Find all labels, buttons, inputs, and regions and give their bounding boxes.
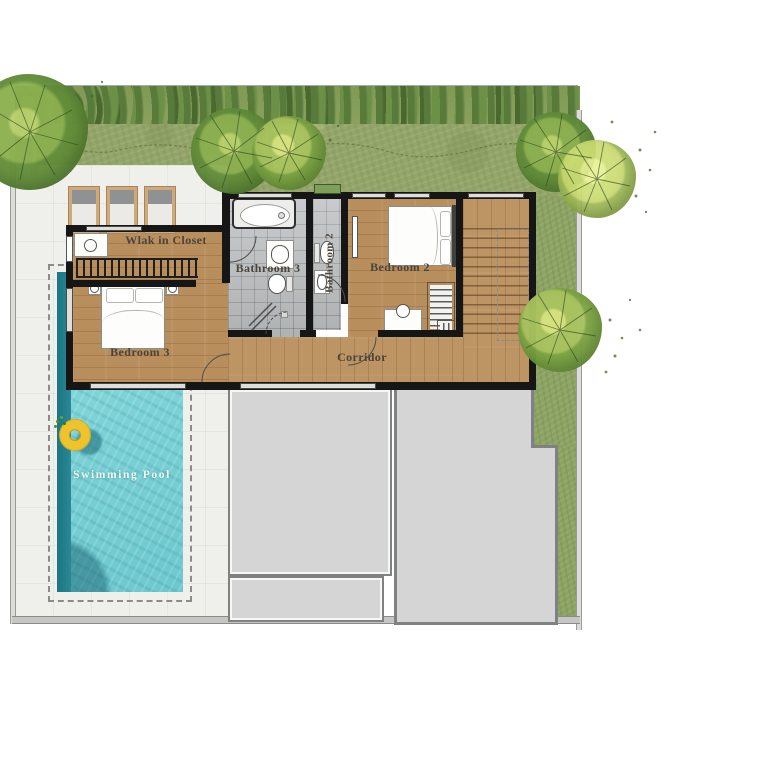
wall-segment: [300, 330, 316, 337]
window-planter-icon: [314, 184, 341, 194]
label-bedroom-2: Bedroom 2: [348, 260, 452, 275]
closet-hanger-rail-icon: [76, 258, 198, 278]
label-corridor: Corridor: [310, 350, 414, 365]
sliding-door-glass: [90, 383, 186, 389]
window-glass: [352, 193, 386, 198]
toilet-tank: [286, 276, 293, 292]
roof-bottom-strip: [228, 576, 384, 622]
window-glass: [66, 288, 73, 332]
wall-segment: [72, 280, 196, 287]
wall-segment: [228, 330, 272, 337]
bathtub-icon: [232, 198, 296, 229]
bedroom-bench: [352, 216, 358, 258]
pool-splash-dots: [56, 420, 59, 423]
label-swimming-pool: Swimming Pool: [62, 468, 182, 483]
wall-segment: [456, 192, 463, 337]
bed-icon: [101, 283, 165, 349]
window-glass: [394, 193, 430, 198]
toilet-icon: [268, 274, 286, 294]
label-bathroom-2: Bathroom 2: [323, 233, 338, 293]
bed-icon: [388, 206, 452, 266]
wall-segment: [341, 192, 348, 304]
window-glass: [86, 226, 142, 231]
window-glass: [66, 236, 73, 262]
label-bedroom-3: Bedroom 3: [85, 345, 195, 360]
tree-icon: [518, 288, 602, 372]
wall-segment: [378, 330, 456, 337]
swim-ring-icon: [60, 420, 90, 450]
tree-icon: [558, 140, 636, 218]
sliding-door-glass: [240, 383, 376, 389]
window-glass: [468, 193, 524, 198]
label-walk-in-closet: Wlak in Closet: [96, 233, 236, 248]
roof-left: [228, 388, 392, 576]
floor-plan-canvas: Wlak in Closet Bathroom 3 Bathroom 2 Bed…: [0, 0, 780, 780]
chair-icon: [396, 304, 410, 318]
shower-drain-icon: [281, 311, 288, 318]
boundary-wall-left: [10, 150, 16, 624]
label-bathroom-3: Bathroom 3: [228, 261, 308, 276]
window-glass: [238, 193, 292, 198]
